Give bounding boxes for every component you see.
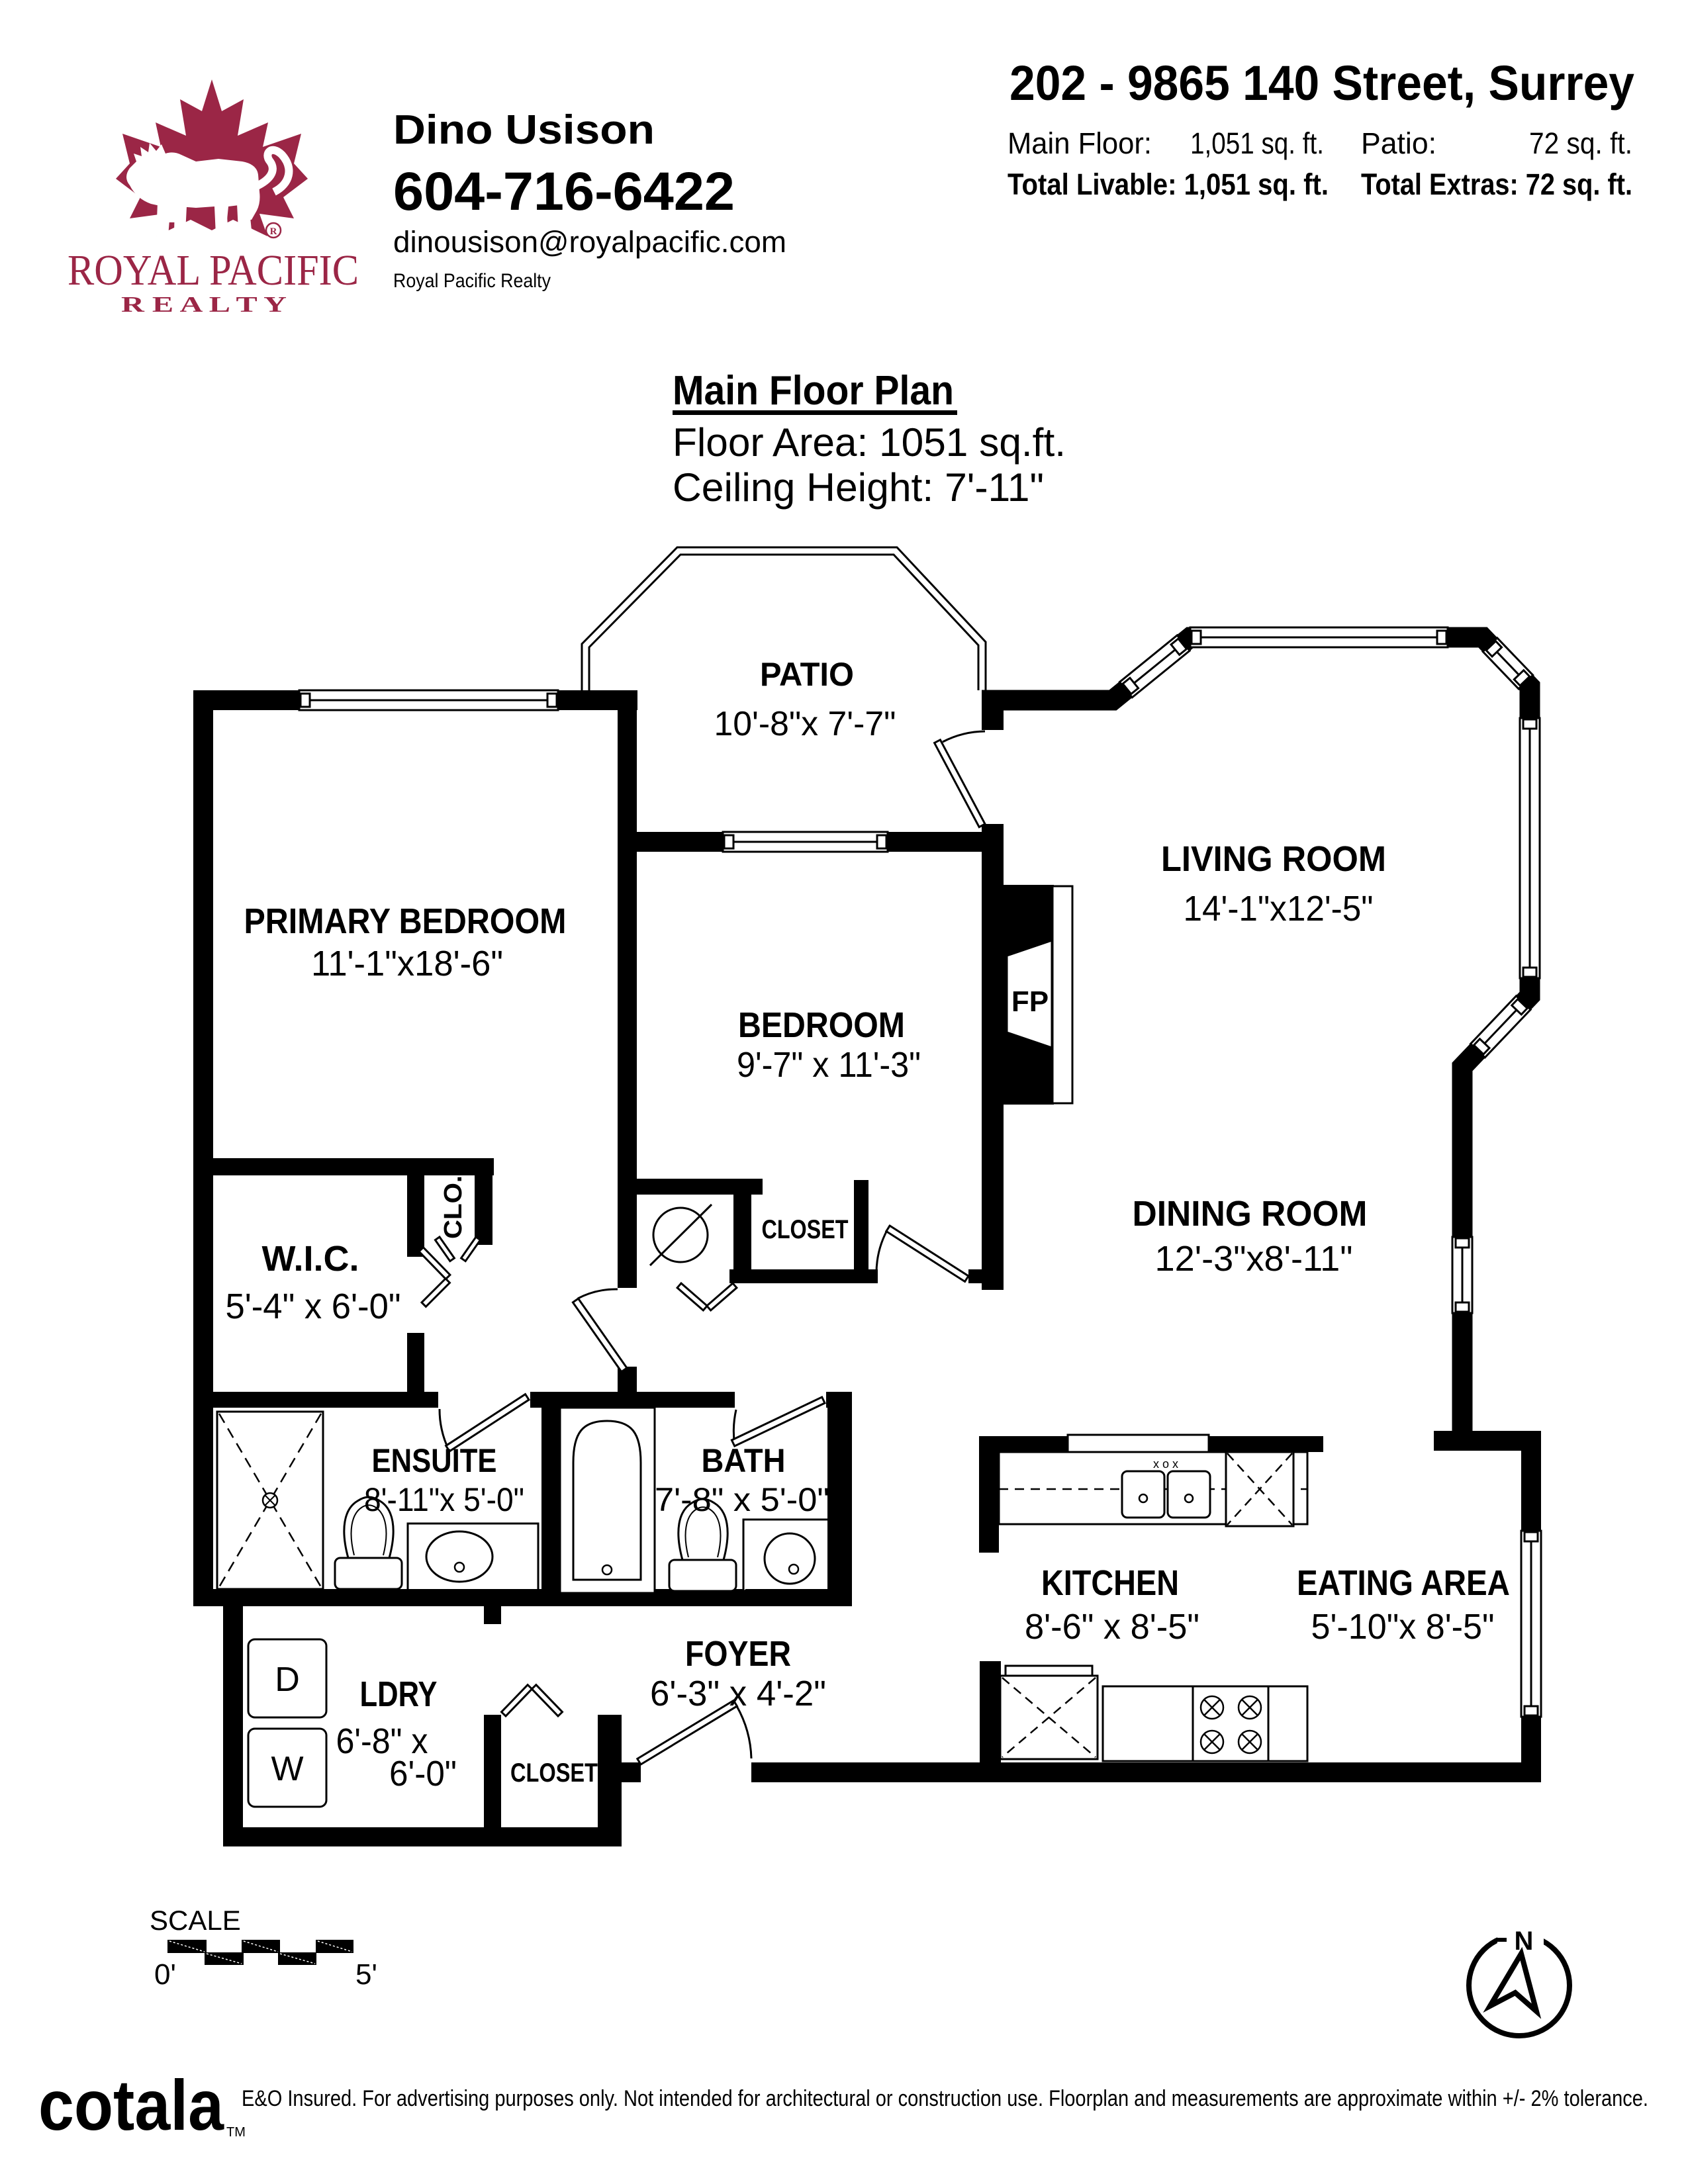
svg-text:Main Floor Plan: Main Floor Plan [673,368,954,414]
svg-text:D: D [275,1661,300,1699]
svg-text:dinousison@royalpacific.com: dinousison@royalpacific.com [393,225,786,259]
svg-text:LDRY: LDRY [360,1674,438,1714]
svg-text:Floor Area: 1051 sq.ft.: Floor Area: 1051 sq.ft. [673,420,1066,465]
svg-text:KITCHEN: KITCHEN [1041,1563,1179,1603]
svg-text:6'-3" x 4'-2": 6'-3" x 4'-2" [650,1674,826,1713]
svg-text:12'-3"x8'-11": 12'-3"x8'-11" [1155,1239,1353,1279]
svg-text:x o x: x o x [1153,1457,1178,1471]
svg-text:5'-4" x 6'-0": 5'-4" x 6'-0" [226,1287,401,1326]
svg-text:CLO.: CLO. [440,1175,467,1239]
svg-text:ROYAL PACIFIC: ROYAL PACIFIC [68,246,359,295]
svg-text:Main Floor:: Main Floor: [1008,126,1152,160]
svg-text:10'-8"x 7'-7": 10'-8"x 7'-7" [714,705,896,743]
svg-text:8'-6" x 8'-5": 8'-6" x 8'-5" [1025,1607,1199,1647]
svg-text:EATING AREA: EATING AREA [1297,1563,1510,1603]
svg-text:604-716-6422: 604-716-6422 [393,161,735,222]
svg-text:8'-11"x 5'-0": 8'-11"x 5'-0" [364,1481,524,1518]
svg-text:1,051 sq. ft.: 1,051 sq. ft. [1190,126,1324,160]
svg-text:W.I.C.: W.I.C. [262,1239,359,1279]
svg-text:DINING ROOM: DINING ROOM [1133,1194,1368,1234]
svg-text:CLOSET: CLOSET [762,1215,849,1244]
svg-text:R E A L T Y: R E A L T Y [121,293,287,317]
svg-text:BEDROOM: BEDROOM [738,1005,905,1045]
svg-text:5': 5' [355,1958,377,1991]
svg-text:Royal Pacific Realty: Royal Pacific Realty [393,270,551,292]
svg-text:14'-1"x12'-5": 14'-1"x12'-5" [1184,889,1374,929]
svg-text:E&O Insured. For advertising p: E&O Insured. For advertising purposes on… [242,2086,1648,2111]
svg-text:Total Livable: 1,051 sq. ft.: Total Livable: 1,051 sq. ft. [1008,167,1329,201]
svg-text:SCALE: SCALE [150,1905,241,1936]
svg-text:Dino Usison: Dino Usison [393,107,655,153]
svg-text:TM: TM [226,2125,246,2140]
svg-text:9'-7" x 11'-3": 9'-7" x 11'-3" [737,1045,921,1085]
svg-text:Patio:: Patio: [1361,126,1436,160]
svg-text:7'-8" x 5'-0": 7'-8" x 5'-0" [655,1481,829,1518]
svg-text:Total Extras: 72 sq. ft.: Total Extras: 72 sq. ft. [1361,167,1632,201]
svg-text:FP: FP [1011,985,1049,1018]
svg-text:BATH: BATH [702,1442,786,1479]
svg-text:202 - 9865 140 Street, Surrey: 202 - 9865 140 Street, Surrey [1009,56,1634,111]
svg-text:6'-0": 6'-0" [389,1754,457,1794]
svg-text:cotala: cotala [38,2065,224,2145]
svg-text:N: N [1515,1927,1534,1956]
svg-text:W: W [271,1750,303,1788]
svg-text:11'-1"x18'-6": 11'-1"x18'-6" [311,944,503,983]
svg-text:ENSUITE: ENSUITE [372,1442,497,1479]
svg-text:PATIO: PATIO [760,656,854,693]
svg-text:LIVING ROOM: LIVING ROOM [1161,839,1386,879]
svg-text:CLOSET: CLOSET [510,1758,598,1788]
svg-text:PRIMARY BEDROOM: PRIMARY BEDROOM [244,901,567,941]
svg-text:FOYER: FOYER [685,1634,791,1674]
svg-text:Ceiling Height: 7'-11": Ceiling Height: 7'-11" [673,465,1044,510]
svg-text:5'-10"x 8'-5": 5'-10"x 8'-5" [1311,1607,1495,1647]
svg-text:R: R [270,226,277,237]
svg-text:0': 0' [154,1958,176,1991]
svg-text:72 sq. ft.: 72 sq. ft. [1529,126,1632,160]
